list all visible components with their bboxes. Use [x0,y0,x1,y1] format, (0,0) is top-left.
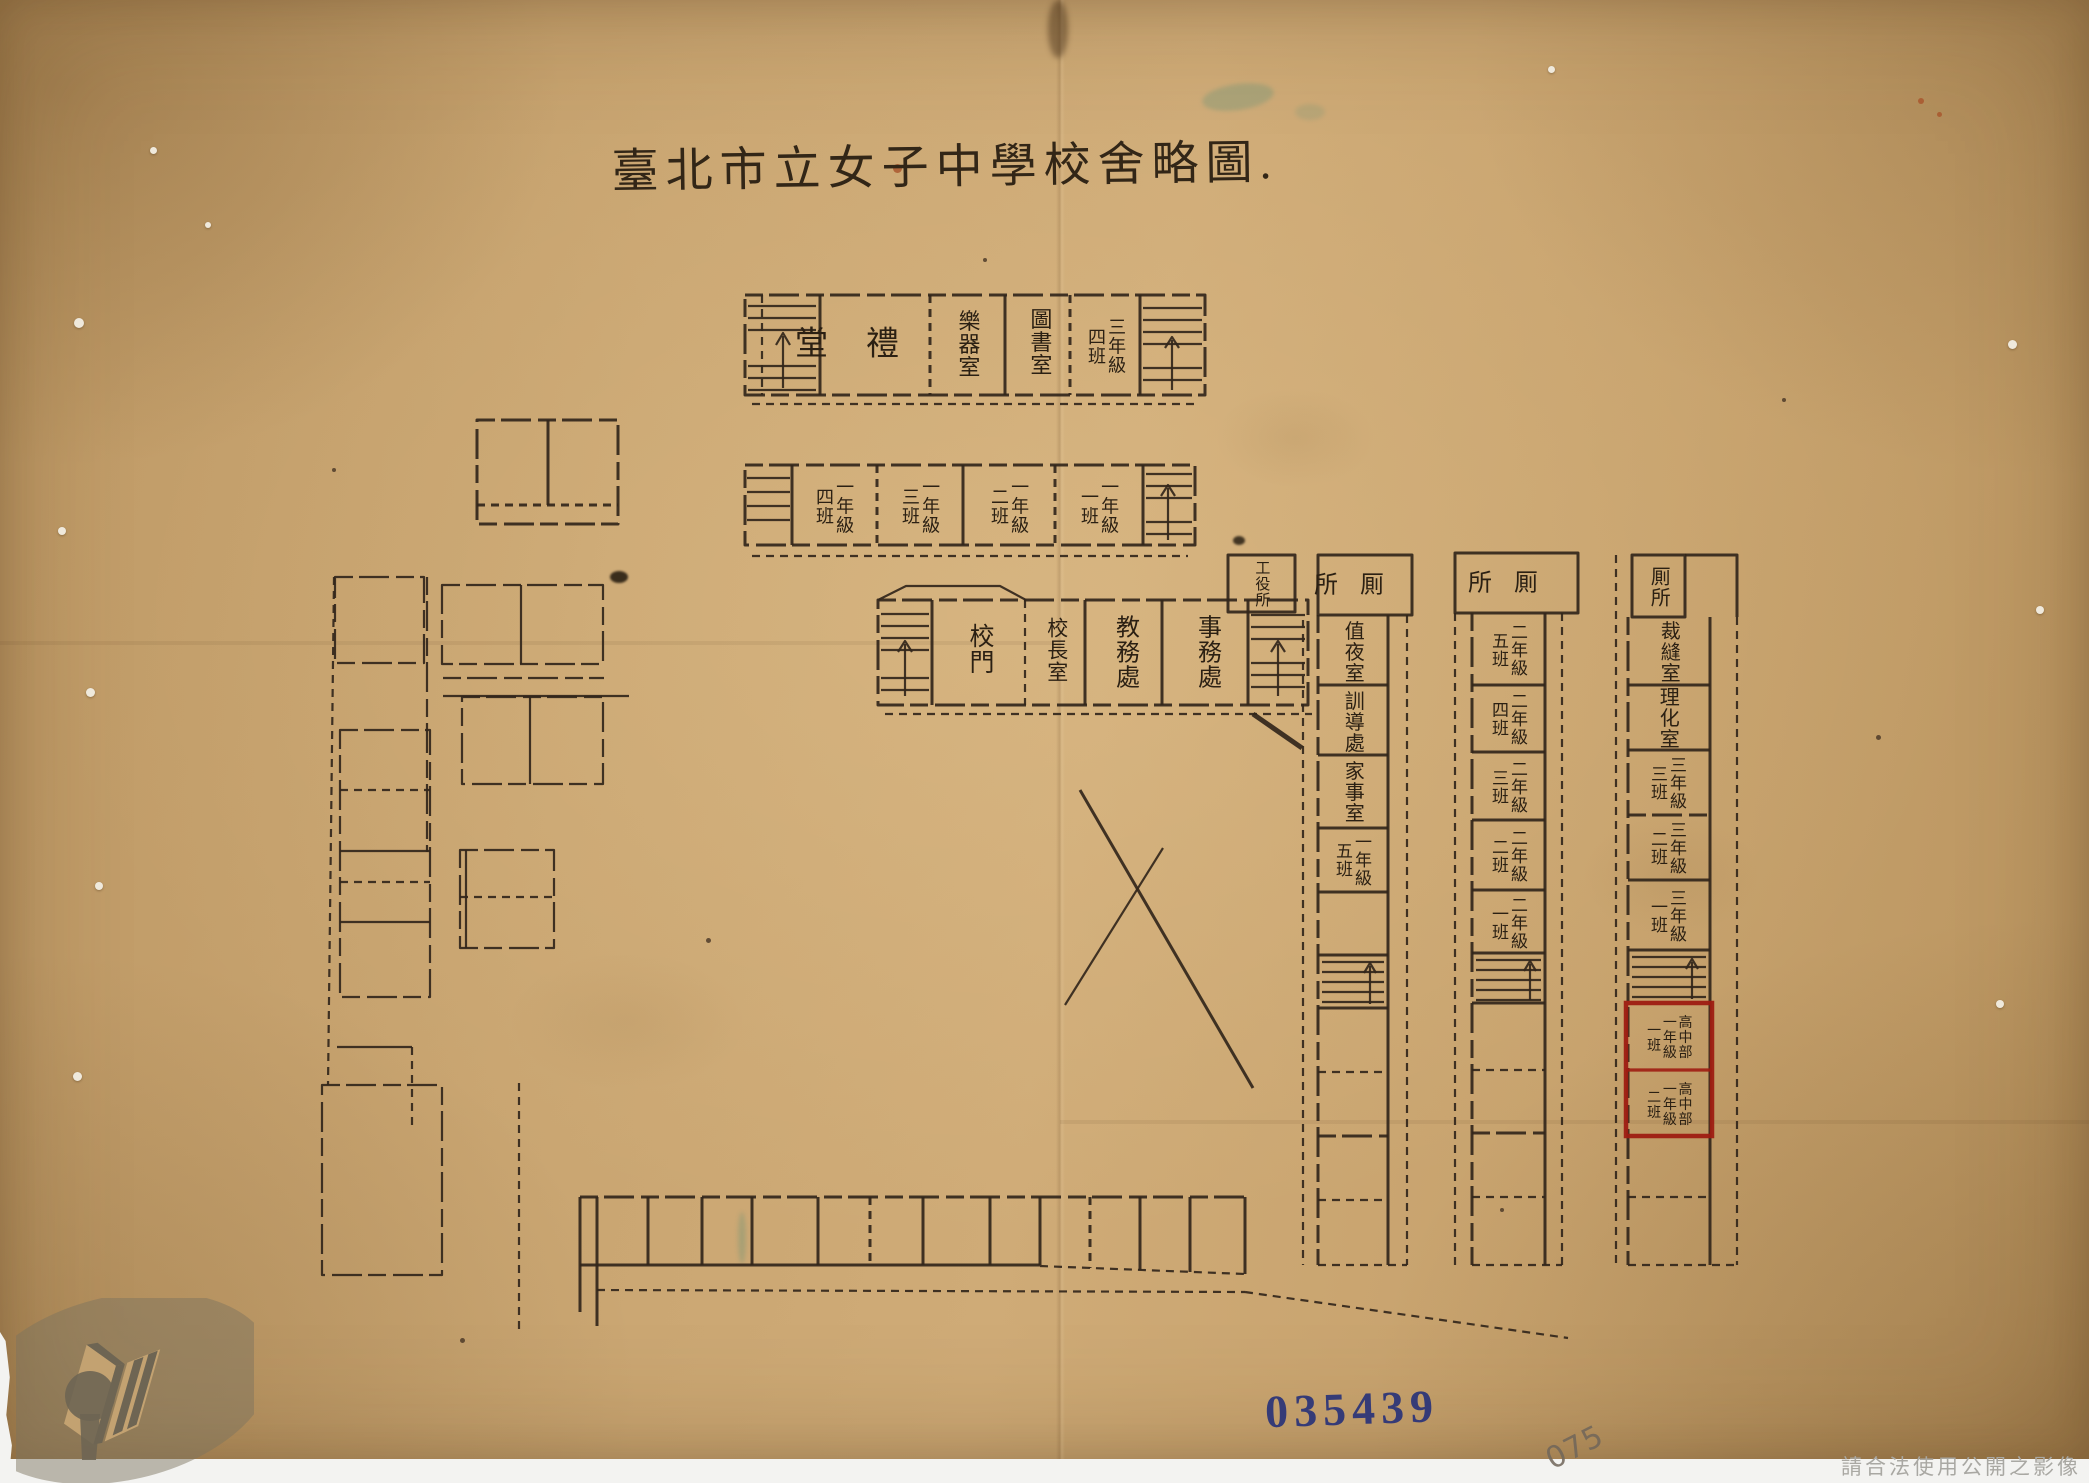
courtyard-path-lines [1065,790,1253,1088]
path-mark [1253,714,1302,748]
room-label-toilet-wing3: 厠所 [1647,566,1669,608]
room-label-grade2-class4: 二年級 四班 [1489,692,1527,746]
room-label-home-economics: 家事室 [1341,761,1363,824]
room-label-grade3-class2: 三年級 二班 [1648,821,1686,875]
room-label-grade3-class3: 三年級 三班 [1648,756,1686,810]
scanned-document: 臺北市立女子中學校舍略圖. 堂禮 樂器室 圖書室 三年級 四班 一年級 四班 一… [0,0,2089,1483]
room-label-sewing-room: 裁縫室 [1657,621,1679,684]
archives-logo [16,1298,254,1483]
admin-block-outline [878,555,1312,748]
room-label-night-duty: 值夜室 [1341,621,1363,684]
floor-plan-drawing [0,0,2089,1483]
room-label-school-gate: 校門 [965,623,993,675]
room-label-grade2-class1: 二年級 一班 [1489,896,1527,950]
room-label-principal-office: 校長室 [1044,617,1068,683]
road-line [1245,1292,1568,1338]
stairs-icon [1251,615,1305,696]
room-label-grade1-class2: 一年級 二班 [989,478,1029,535]
room-label-science-room: 理化室 [1656,687,1678,750]
stairs-icon [1143,308,1202,390]
room-label-grade2-class5: 二年級 五班 [1489,623,1527,677]
room-label-grade1-class1: 一年級 一班 [1079,478,1119,535]
stairs-icon [1146,474,1192,540]
room-label-grade3-class1: 三年級 一班 [1648,889,1686,943]
copyright-watermark: 請合法使用公開之影像 [1841,1451,2081,1481]
room-label-discipline-office: 訓導處 [1341,691,1363,754]
archive-number-stamp: 035439 [1264,1380,1440,1438]
room-label-music-room: 樂器室 [955,310,980,379]
stairs-icon [747,478,790,520]
room-label-toilet-wing2: 所厠 [1468,571,1560,598]
page-title: 臺北市立女子中學校舍略圖. [611,137,1278,199]
room-label-grade1-class4: 一年級 四班 [814,478,854,535]
room-label-grade3-class4: 三年級 四班 [1086,318,1126,375]
grade1-block-outline [745,465,1195,556]
stairs-icon [1322,962,1384,1004]
stairs-icon [1476,960,1541,1000]
room-label-seniorhigh-grade1-class1: 高中部 一年級 一班 [1644,1015,1691,1060]
room-label-library: 圖書室 [1027,308,1052,377]
west-buildings-outline [322,420,629,1332]
room-label-grade2-class3: 二年級 三班 [1489,760,1527,814]
room-label-caretaker: 工役所 [1253,560,1270,608]
room-label-toilet-wing1: 所厠 [1314,573,1406,600]
room-label-seniorhigh-grade1-class2: 高中部 一年級 二班 [1644,1082,1691,1127]
room-label-auditorium: 堂禮 [795,327,937,364]
south-row-outline [580,1197,1568,1338]
stairs-icon [881,614,929,696]
stairs-icon [1632,957,1706,999]
room-label-grade1-class3: 一年級 三班 [900,478,940,535]
road-line [597,1290,1245,1292]
room-label-general-affairs: 事務處 [1193,615,1220,690]
room-label-grade2-class2: 二年級 二班 [1489,829,1527,883]
room-label-grade1-class5: 一年級 五班 [1333,833,1371,887]
room-label-academic-affairs: 教務處 [1111,615,1138,690]
